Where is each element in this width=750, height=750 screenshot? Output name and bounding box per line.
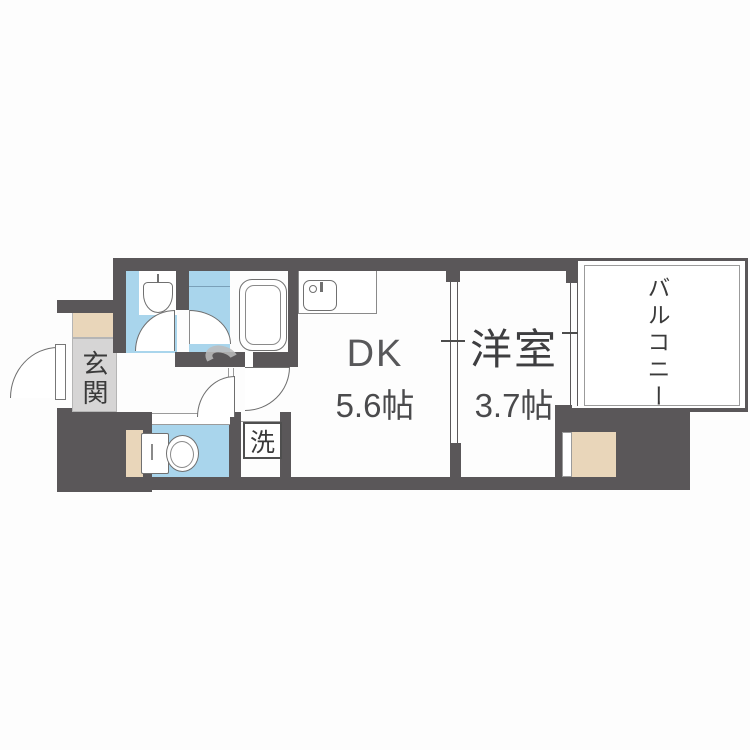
western-room-size: 3.7帖 (450, 379, 578, 427)
bathtub-inner-line (245, 285, 281, 345)
washing-machine-space: 洗 (243, 422, 282, 459)
closet-door (562, 432, 572, 477)
entrance-door-arc (10, 347, 58, 398)
entrance-label: 玄関 (72, 344, 117, 414)
kitchen-faucet-stem (320, 282, 323, 292)
toilet-seat (170, 441, 194, 468)
floorplan-canvas: 玄関 DK 5.6帖 洋室 3.7帖 バルコニー 洗 (0, 0, 750, 750)
wall-segment (555, 432, 562, 477)
dk-door-arc (245, 367, 290, 411)
dk-room-name: DK (300, 333, 450, 376)
western-room-name: 洋室 (450, 316, 578, 377)
western-room-label-block: 洋室 3.7帖 (450, 316, 578, 427)
wall-segment (288, 258, 298, 367)
shoe-cabinet (72, 312, 117, 338)
dk-room-size: 5.6帖 (300, 379, 450, 427)
wall-segment (57, 477, 690, 490)
wall-segment (57, 300, 118, 313)
balcony-label: バルコニー (642, 272, 672, 414)
wall-gap (245, 352, 253, 367)
toilet-tank (141, 433, 169, 474)
kitchen-faucet (309, 285, 317, 293)
bathroom-counter-line (189, 286, 230, 287)
washbasin-faucet (157, 274, 159, 283)
toilet-door-arc (197, 376, 235, 417)
wall-segment (176, 258, 189, 310)
closet (572, 432, 616, 477)
wall-segment (446, 271, 460, 282)
wall-segment (450, 443, 461, 477)
entrance-door-leaf (55, 344, 66, 400)
toilet-tank-line (151, 444, 153, 460)
wall-segment (229, 412, 241, 477)
dk-room-label-block: DK 5.6帖 (300, 333, 450, 427)
